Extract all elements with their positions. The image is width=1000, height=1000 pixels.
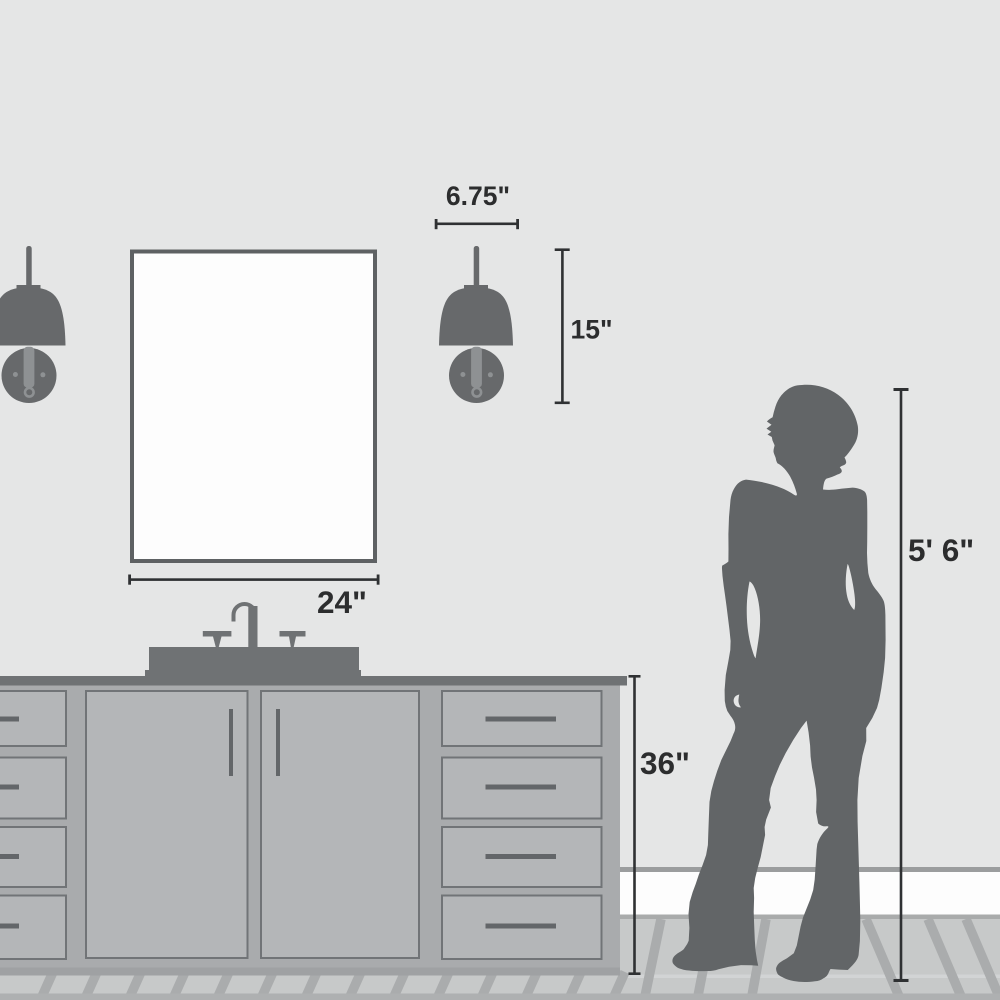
svg-text:15": 15" (571, 315, 613, 345)
svg-text:36": 36" (640, 745, 690, 781)
svg-text:6.75": 6.75" (446, 181, 510, 211)
svg-text:5' 6": 5' 6" (908, 532, 974, 568)
svg-text:24": 24" (317, 584, 367, 620)
